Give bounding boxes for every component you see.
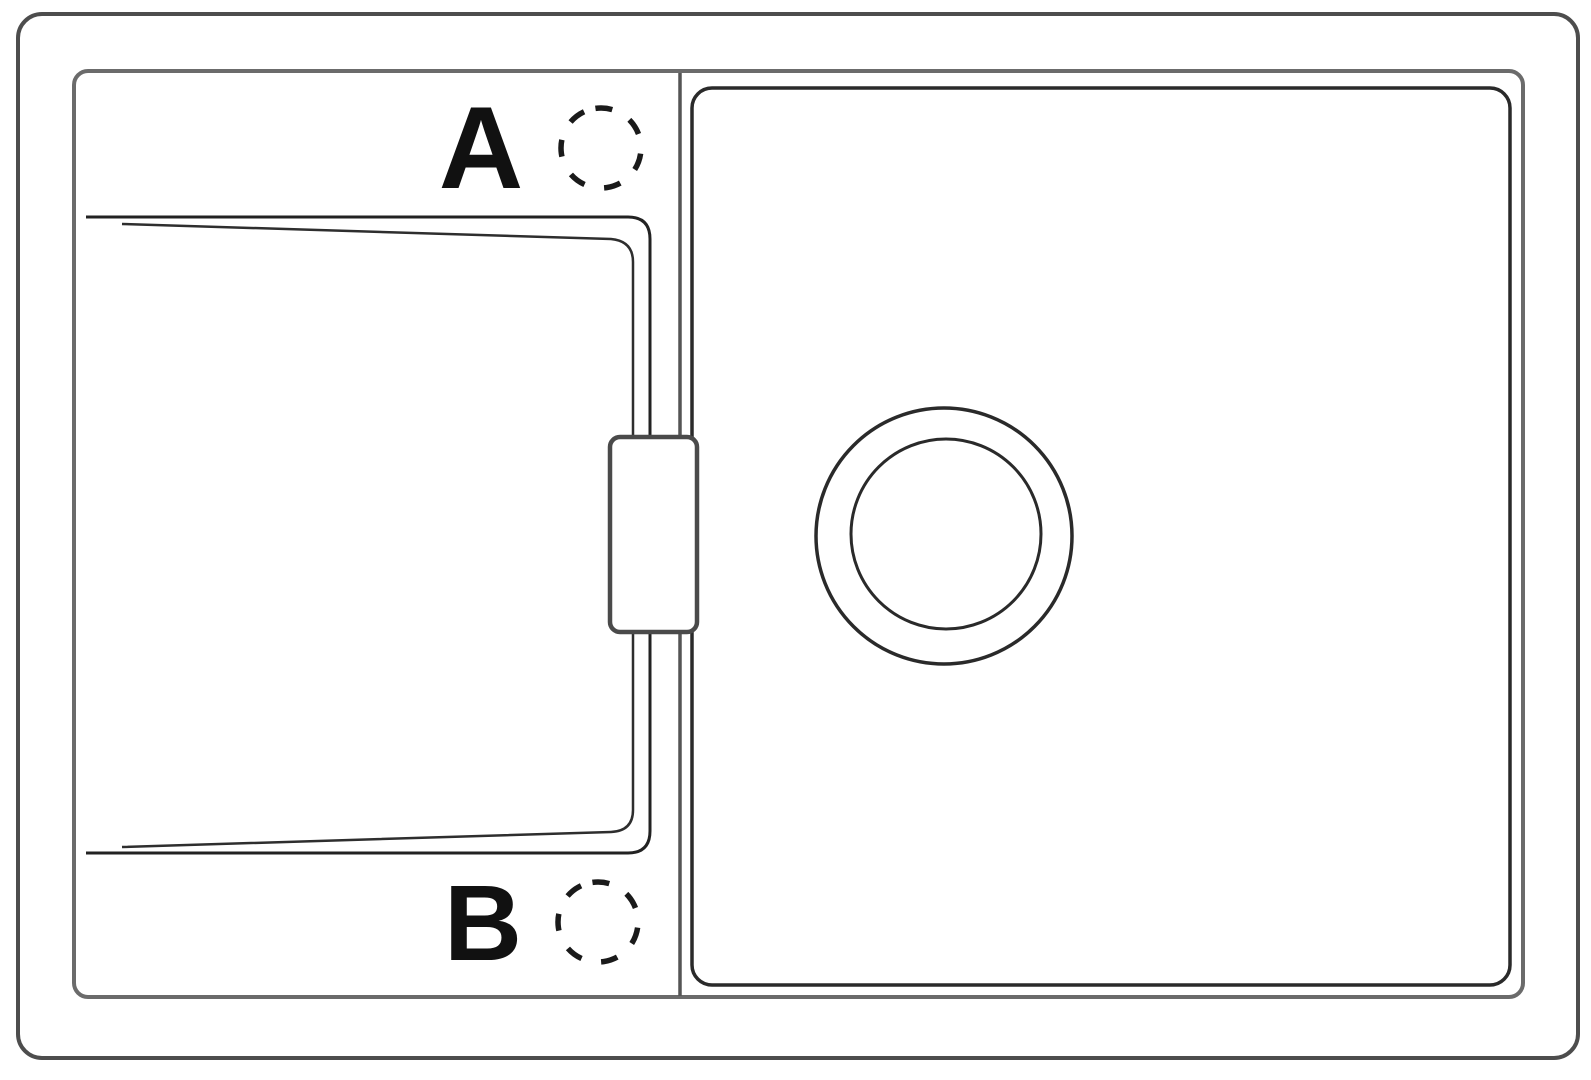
- tap-hole-b-dashed-circle-icon: [553, 877, 643, 967]
- label-a: A: [439, 82, 524, 213]
- sink-inner-rim: [74, 71, 1523, 997]
- tap-hole-a-dashed-circle-icon: [556, 103, 646, 193]
- drain-inner-circle: [851, 439, 1041, 629]
- drain-outer-circle: [816, 408, 1072, 664]
- sink-outer-edge: [18, 14, 1578, 1058]
- drainboard-inner-contour: [122, 224, 633, 847]
- overflow-connector-block: [610, 437, 697, 632]
- drainboard-outer-contour: [86, 217, 650, 853]
- sink-top-view-drawing: A B: [0, 0, 1591, 1080]
- sink-diagram: A B: [0, 0, 1591, 1080]
- label-b: B: [444, 862, 522, 983]
